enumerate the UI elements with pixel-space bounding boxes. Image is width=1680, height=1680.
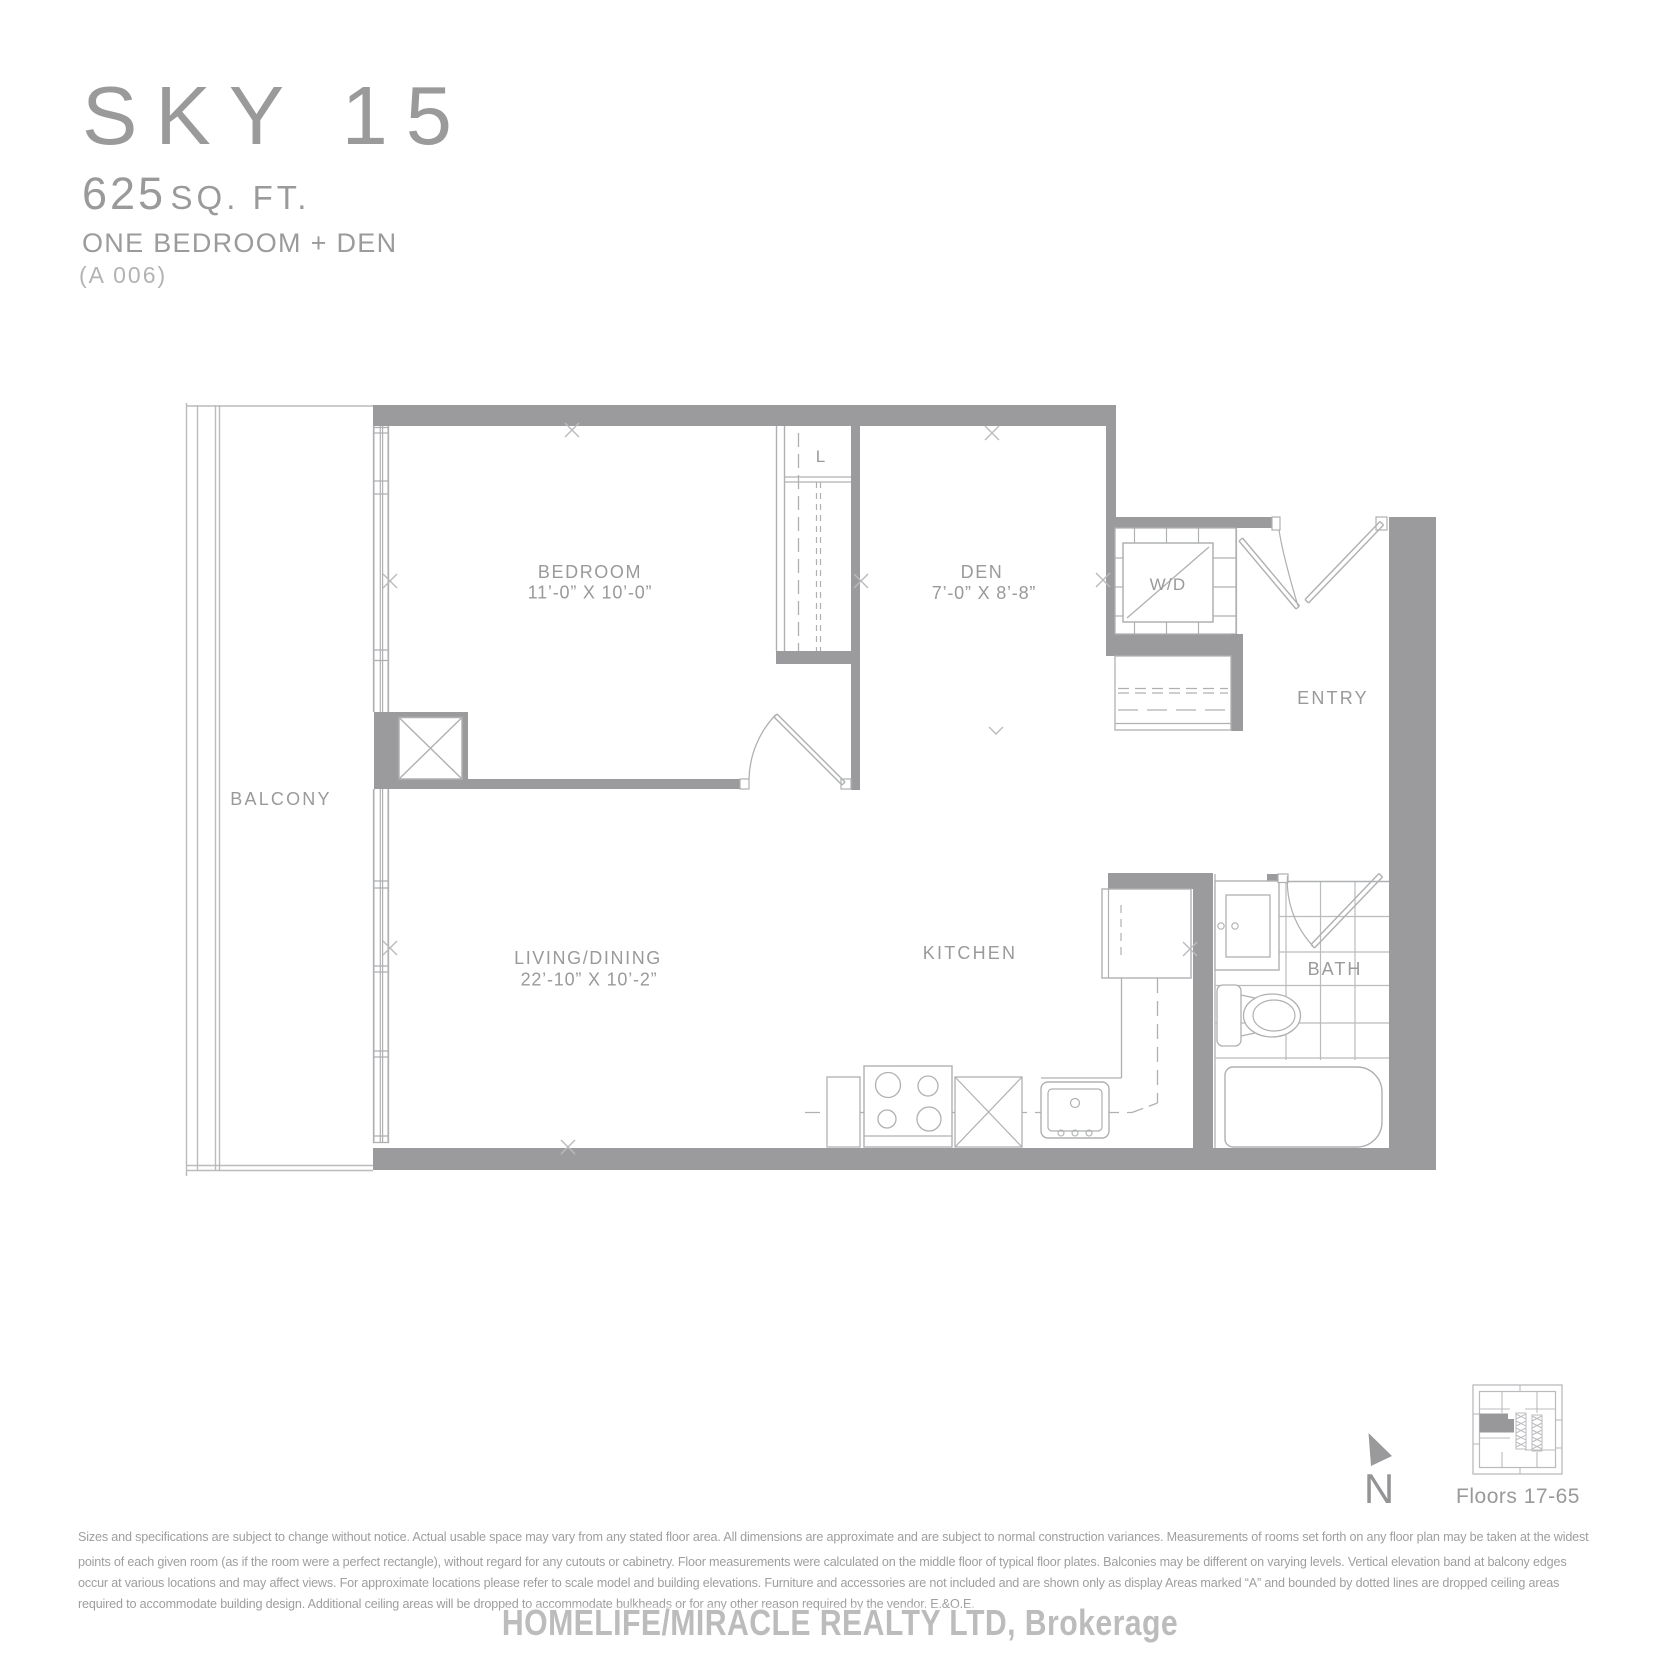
svg-text:Floors 17-65: Floors 17-65 [1456, 1485, 1580, 1508]
svg-text:BATH: BATH [1308, 959, 1363, 979]
svg-text:DEN: DEN [961, 562, 1004, 582]
svg-text:BEDROOM: BEDROOM [538, 562, 642, 582]
svg-text:LIVING/DINING: LIVING/DINING [514, 948, 662, 968]
svg-text:KITCHEN: KITCHEN [923, 943, 1017, 963]
svg-text:7’-0” X 8’-8”: 7’-0” X 8’-8” [932, 583, 1036, 603]
svg-text:BALCONY: BALCONY [230, 789, 331, 809]
svg-text:ENTRY: ENTRY [1297, 688, 1369, 708]
svg-text:22’-10” X 10’-2”: 22’-10” X 10’-2” [521, 970, 658, 990]
svg-text:W/D: W/D [1150, 575, 1187, 594]
svg-text:L: L [816, 447, 826, 466]
svg-text:N: N [1364, 1465, 1394, 1512]
svg-text:11’-0” X 10’-0”: 11’-0” X 10’-0” [528, 583, 653, 603]
